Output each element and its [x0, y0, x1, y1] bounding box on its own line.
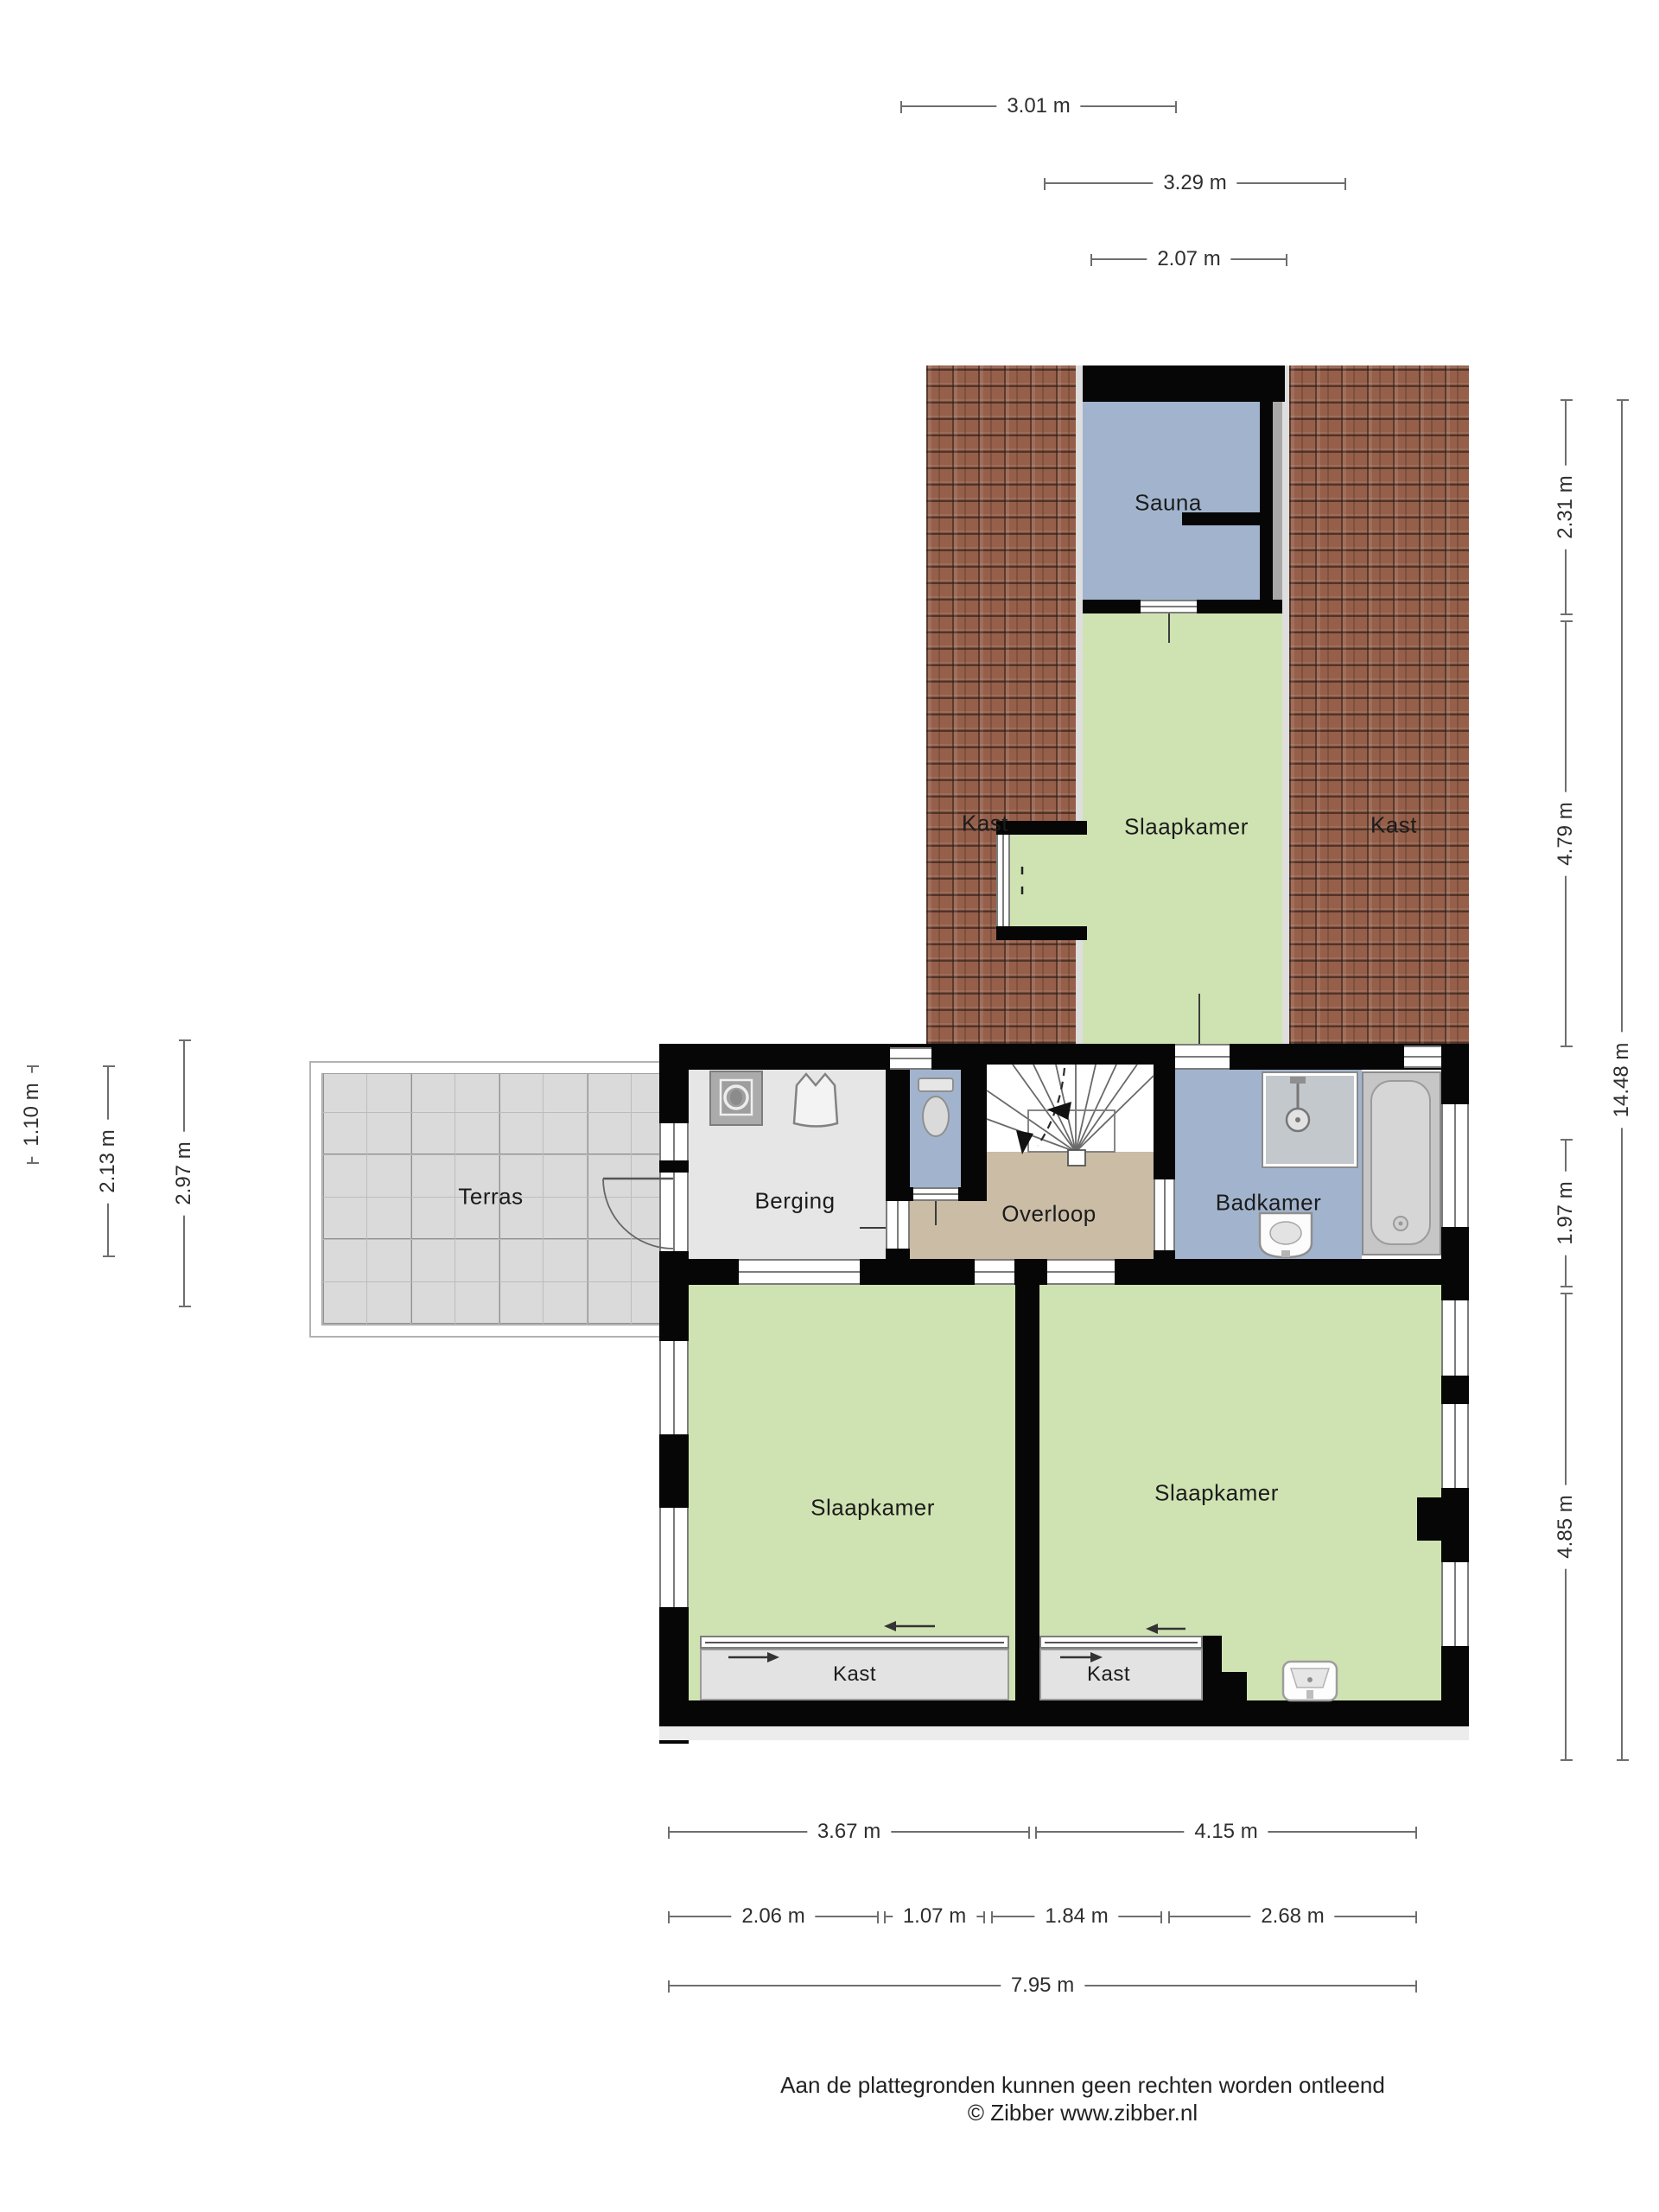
- shower-tray: [1263, 1073, 1357, 1166]
- label-sauna: Sauna: [1135, 490, 1202, 517]
- sauna-wall-bottom-left: [1083, 600, 1141, 613]
- window-west-2: [659, 1508, 689, 1607]
- closet-right-track: [1039, 1636, 1203, 1649]
- bathroom-door: [1154, 1179, 1175, 1250]
- alcove-wall-bottom: [996, 926, 1087, 940]
- dim-bottom-total: 7.95 m: [668, 1985, 1417, 1986]
- bedroom-left-door: [975, 1259, 1014, 1285]
- dim-bottom-5: 1.84 m: [991, 1916, 1162, 1917]
- toilet-floor: [910, 1070, 961, 1187]
- building-shadow: [659, 1726, 1469, 1740]
- storage-door-tick: [860, 1227, 886, 1229]
- window-east-3: [1441, 1562, 1469, 1646]
- label-closet-top-left: Kast: [962, 810, 1008, 837]
- label-terrace: Terras: [458, 1184, 523, 1211]
- toilet-door-tick: [935, 1201, 937, 1225]
- staircase-floor: [987, 1065, 1154, 1152]
- sauna-wall-top: [1083, 365, 1285, 402]
- dim-label: 2.13 m: [94, 1119, 122, 1203]
- roof-seam-right: [1282, 365, 1289, 1044]
- dim-bottom-3: 2.06 m: [668, 1916, 879, 1917]
- alcove-door: [996, 835, 1010, 926]
- label-storage: Berging: [754, 1188, 835, 1215]
- bedroom-top-door-tick: [1198, 994, 1200, 1044]
- dim-top-3: 2.07 m: [1090, 258, 1287, 260]
- dim-label: 3.67 m: [807, 1818, 891, 1846]
- dim-label: 4.85 m: [1552, 1484, 1580, 1568]
- dim-bottom-1: 3.67 m: [668, 1831, 1030, 1833]
- dim-left-1: 1.10 m: [31, 1065, 33, 1164]
- dim-right-2: 4.79 m: [1565, 620, 1567, 1047]
- dim-left-2: 2.13 m: [107, 1065, 109, 1257]
- dim-right-1: 2.31 m: [1565, 399, 1567, 615]
- dim-label: 1.07 m: [893, 1903, 976, 1930]
- dim-label: 2.97 m: [170, 1131, 198, 1215]
- dim-right-4: 4.85 m: [1565, 1293, 1567, 1761]
- label-closet-top-right: Kast: [1370, 812, 1417, 839]
- dim-label: 2.06 m: [731, 1903, 815, 1930]
- storage-door: [886, 1201, 910, 1249]
- label-bedroom-left: Slaapkamer: [810, 1495, 935, 1522]
- dim-label: 4.15 m: [1184, 1818, 1268, 1846]
- storage-floor: [689, 1070, 886, 1259]
- window-west-1: [659, 1341, 689, 1434]
- roof-seam-left: [1076, 365, 1083, 1044]
- terrace-window: [659, 1123, 689, 1160]
- wall-closet-step-2: [1203, 1672, 1247, 1700]
- sauna-wall-bottom-right: [1197, 600, 1282, 613]
- bathroom-window: [1441, 1104, 1469, 1227]
- footer-copyright: © Zibber www.zibber.nl: [737, 2100, 1428, 2126]
- dim-left-3: 2.97 m: [183, 1039, 185, 1307]
- bathtub-inner: [1370, 1080, 1431, 1245]
- label-closet-bottom-right: Kast: [1087, 1662, 1130, 1687]
- label-closet-bottom-left: Kast: [833, 1662, 876, 1687]
- label-bedroom-right: Slaapkamer: [1154, 1480, 1279, 1507]
- dim-label: 3.01 m: [996, 92, 1080, 120]
- label-bathroom: Badkamer: [1216, 1190, 1322, 1217]
- roof-left: [926, 365, 1076, 1044]
- storage-bedroom-door: [739, 1259, 860, 1285]
- bedroom-right-door: [1047, 1259, 1115, 1285]
- dim-label: 2.68 m: [1250, 1903, 1334, 1930]
- dim-label: 1.84 m: [1034, 1903, 1118, 1930]
- dim-top-1: 3.01 m: [900, 105, 1177, 107]
- wall-divider: [1015, 1285, 1039, 1700]
- toilet-door: [913, 1187, 958, 1201]
- dim-label: 14.48 m: [1608, 1033, 1636, 1128]
- sauna-wall-gray: [1273, 402, 1282, 613]
- sauna-door: [1141, 600, 1197, 613]
- wall-bottom: [659, 1700, 1469, 1726]
- window-east-1: [1441, 1300, 1469, 1376]
- dim-right-total: 14.48 m: [1621, 399, 1623, 1761]
- dim-label: 1.10 m: [18, 1072, 46, 1156]
- window-east-2: [1441, 1404, 1469, 1488]
- dim-right-3: 1.97 m: [1565, 1139, 1567, 1287]
- dim-label: 1.97 m: [1552, 1171, 1580, 1255]
- dim-label: 2.31 m: [1552, 465, 1580, 549]
- terrace-door-opening: [659, 1173, 689, 1251]
- sauna-door-tick: [1168, 613, 1170, 643]
- sauna-wall-right: [1260, 402, 1273, 613]
- dim-bottom-2: 4.15 m: [1035, 1831, 1417, 1833]
- landing-window: [890, 1047, 931, 1070]
- dim-label: 2.07 m: [1147, 245, 1230, 273]
- alcove-floor: [1009, 834, 1087, 926]
- dim-bottom-6: 2.68 m: [1168, 1916, 1417, 1917]
- dim-label: 7.95 m: [1001, 1972, 1084, 1999]
- wall-east-pillar: [1417, 1497, 1441, 1541]
- roof-right: [1289, 365, 1469, 1044]
- floorplan: 3.01 m 3.29 m 2.07 m 2.31 m 4.79 m 1.97 …: [0, 0, 1659, 2212]
- label-landing: Overloop: [1001, 1201, 1096, 1228]
- dim-bottom-4: 1.07 m: [884, 1916, 985, 1917]
- label-bedroom-top: Slaapkamer: [1124, 814, 1249, 841]
- dim-label: 3.29 m: [1153, 169, 1236, 197]
- footer-disclaimer: Aan de plattegronden kunnen geen rechten…: [737, 2072, 1428, 2099]
- alcove-wall-top: [996, 821, 1087, 835]
- closet-left-track: [700, 1636, 1009, 1649]
- wall-toilet-right: [961, 1044, 987, 1201]
- dim-top-2: 3.29 m: [1044, 182, 1346, 184]
- dim-label: 4.79 m: [1552, 791, 1580, 875]
